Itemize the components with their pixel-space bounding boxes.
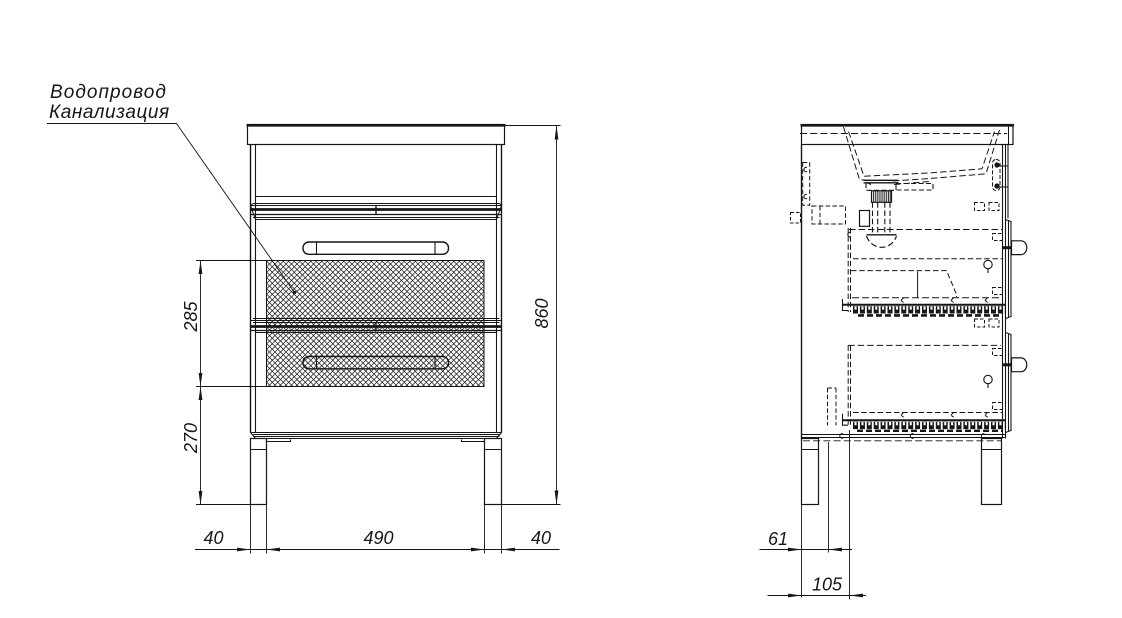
svg-text:61: 61 (768, 529, 788, 549)
svg-text:860: 860 (532, 298, 552, 328)
svg-text:Канализация: Канализация (49, 102, 170, 123)
svg-text:105: 105 (812, 575, 843, 595)
svg-text:40: 40 (203, 528, 223, 548)
svg-text:40: 40 (531, 528, 551, 548)
svg-text:285: 285 (181, 301, 201, 333)
svg-text:490: 490 (363, 528, 393, 548)
svg-text:270: 270 (181, 423, 201, 454)
svg-text:Водопровод: Водопровод (50, 82, 167, 103)
